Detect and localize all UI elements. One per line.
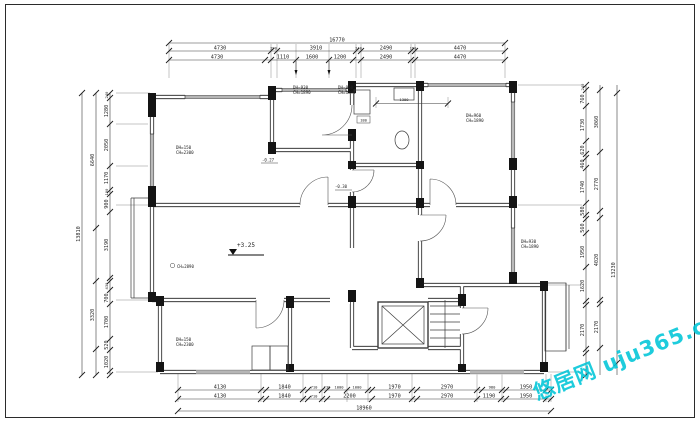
dim-label: 1840 — [278, 394, 291, 400]
dim-label: 3910 — [310, 46, 323, 52]
dim-label: 1110 — [277, 55, 290, 61]
dim-label: 4020 — [594, 254, 600, 267]
dim-label: 2490 — [380, 46, 393, 52]
dim-label: 3060 — [594, 116, 600, 129]
dim-label: 1970 — [388, 394, 401, 400]
dim-label: 1950 — [580, 246, 586, 259]
dim-label: 190 — [104, 188, 109, 196]
dim-label: 4730 — [211, 55, 224, 61]
dim-label: 4470 — [454, 46, 467, 52]
dim-label: 1740 — [580, 181, 586, 194]
elevator-shaft — [378, 302, 428, 348]
dimension-labels-top: 16770 4730 290 3910 240 2490 190 4470 47… — [211, 38, 467, 61]
dim-label: 2170 — [594, 321, 600, 334]
dim-label: 1620 — [580, 280, 586, 293]
dim-label: 460 — [580, 159, 586, 168]
dim-label: 4130 — [214, 385, 227, 391]
dim-label: 520 — [104, 340, 110, 349]
window-label: DH=930CH=1890 — [521, 239, 539, 249]
dim-label: 1200 — [334, 55, 347, 61]
dim-label: 580 — [580, 206, 586, 215]
dim-label: 240 — [355, 46, 363, 51]
dim-label: 1700 — [104, 316, 110, 329]
level-label-entry: -0.27 — [262, 158, 275, 163]
dim-label: 1730 — [580, 119, 586, 132]
dim-label: 4130 — [214, 394, 227, 400]
stair-shaft — [430, 300, 460, 348]
right-balcony — [545, 283, 569, 351]
dim-label: 3190 — [104, 239, 110, 252]
dim-label: 13230 — [611, 262, 617, 278]
dim-label: 13810 — [76, 226, 82, 242]
dim-label: 4470 — [454, 55, 467, 61]
dim-label: 1950 — [520, 394, 533, 400]
dim-label: 980 — [489, 385, 497, 390]
walls — [152, 85, 544, 372]
window-label: DH=930CH=1890 — [293, 85, 311, 95]
dim-label: 240 — [104, 91, 109, 99]
dim-label: 2970 — [441, 385, 454, 391]
dimension-labels-left: 240 1280 2050 1170 190 900 3190 430 700 … — [76, 91, 110, 368]
interior-dimensions: 1300 180 — [357, 97, 451, 123]
dim-label: 240 — [580, 83, 585, 91]
dim-label: 230 — [324, 385, 332, 390]
dim-label: 1170 — [104, 172, 110, 185]
level-label-hall: -0.30 — [335, 184, 348, 189]
level-label-main: +3.25 — [237, 242, 255, 249]
dim-label: 1190 — [483, 394, 496, 400]
dimension-labels-right: 240 760 1730 620 460 1740 580 560 1950 1… — [580, 83, 617, 336]
dim-label: 2770 — [594, 178, 600, 191]
dim-label: 1600 — [306, 55, 319, 61]
dim-label: 2050 — [104, 139, 110, 152]
dim-label: 2200 — [343, 394, 356, 400]
floor-plan-page: 16770 4730 290 3910 240 2490 190 4470 47… — [0, 0, 700, 422]
dim-label: 290 — [270, 46, 278, 51]
dim-label: 560 — [580, 223, 586, 232]
dim-label: 1020 — [104, 356, 110, 369]
dim-label: 1000 — [334, 385, 344, 390]
dim-label: 2490 — [380, 55, 393, 61]
dim-label: 2970 — [441, 394, 454, 400]
dim-label: 18960 — [356, 406, 372, 412]
left-bay-window — [131, 198, 152, 298]
dim-label: 6640 — [90, 154, 96, 167]
window-label: DH=150CH=2300 — [176, 145, 194, 155]
dim-label: 710 — [311, 394, 319, 399]
dim-label: 180 — [360, 117, 368, 122]
dim-label: 710 — [311, 385, 319, 390]
dim-label: 700 — [104, 293, 110, 302]
dim-label: 4730 — [214, 46, 227, 52]
dim-label: 1280 — [104, 105, 110, 118]
dim-label: 3320 — [90, 309, 96, 322]
window-label: DH=960CH=1890 — [466, 113, 484, 123]
level-triangle — [229, 249, 237, 255]
closet — [252, 346, 288, 370]
ceiling-height-label: CH=2890 — [177, 264, 194, 269]
dim-label: 2170 — [580, 324, 586, 337]
dim-label: 620 — [580, 145, 586, 154]
dim-label: 1840 — [278, 385, 291, 391]
window-label: DH=150CH=2300 — [176, 337, 194, 347]
dim-label: 900 — [104, 199, 110, 208]
dim-label: 430 — [104, 282, 109, 290]
level-markers: +3.25 CH=2890 -0.30 -0.27 — [170, 158, 352, 270]
dim-label: 1000 — [352, 385, 362, 390]
dim-label: 190 — [410, 46, 418, 51]
dim-label: 760 — [580, 94, 586, 103]
dim-label: 1970 — [388, 385, 401, 391]
dim-label: 16770 — [329, 38, 345, 44]
dim-label: 1300 — [399, 97, 409, 102]
